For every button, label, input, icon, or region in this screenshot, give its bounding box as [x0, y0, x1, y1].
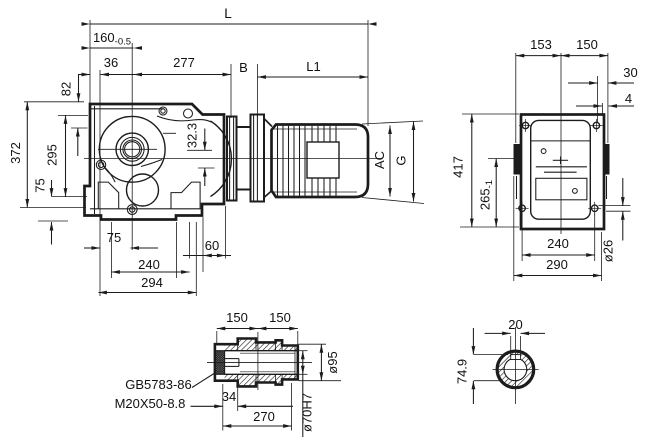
svg-text:372: 372	[8, 142, 23, 164]
svg-text:277: 277	[173, 55, 195, 70]
svg-text:30: 30	[623, 65, 637, 80]
svg-text:290: 290	[546, 257, 568, 272]
svg-text:36: 36	[104, 55, 118, 70]
svg-text:ø95: ø95	[325, 351, 340, 373]
svg-text:32.3: 32.3	[185, 123, 200, 148]
svg-text:75: 75	[33, 178, 48, 192]
svg-text:270: 270	[253, 409, 275, 424]
svg-text:4: 4	[625, 91, 632, 106]
svg-text:74.9: 74.9	[455, 359, 470, 384]
svg-text:295: 295	[45, 144, 60, 166]
svg-text:20: 20	[508, 317, 522, 332]
svg-text:240: 240	[138, 257, 160, 272]
svg-text:B: B	[239, 60, 248, 75]
svg-text:34: 34	[222, 389, 236, 404]
svg-text:75: 75	[107, 230, 121, 245]
svg-text:GB5783-86: GB5783-86	[125, 377, 192, 392]
svg-text:417: 417	[451, 156, 466, 178]
svg-text:L: L	[224, 6, 232, 21]
svg-text:150: 150	[576, 37, 598, 52]
svg-text:M20X50-8.8: M20X50-8.8	[115, 396, 186, 411]
svg-text:ø26: ø26	[601, 240, 616, 262]
svg-text:150: 150	[226, 310, 248, 325]
svg-text:60: 60	[205, 238, 219, 253]
svg-text:240: 240	[547, 236, 569, 251]
svg-text:G: G	[394, 155, 409, 165]
svg-text:153: 153	[530, 37, 552, 52]
svg-text:ø70H7: ø70H7	[300, 393, 315, 432]
svg-text:82: 82	[59, 82, 74, 96]
svg-text:L1: L1	[306, 59, 320, 74]
svg-text:294: 294	[141, 275, 163, 290]
svg-text:150: 150	[269, 310, 291, 325]
svg-text:AC: AC	[372, 151, 387, 169]
